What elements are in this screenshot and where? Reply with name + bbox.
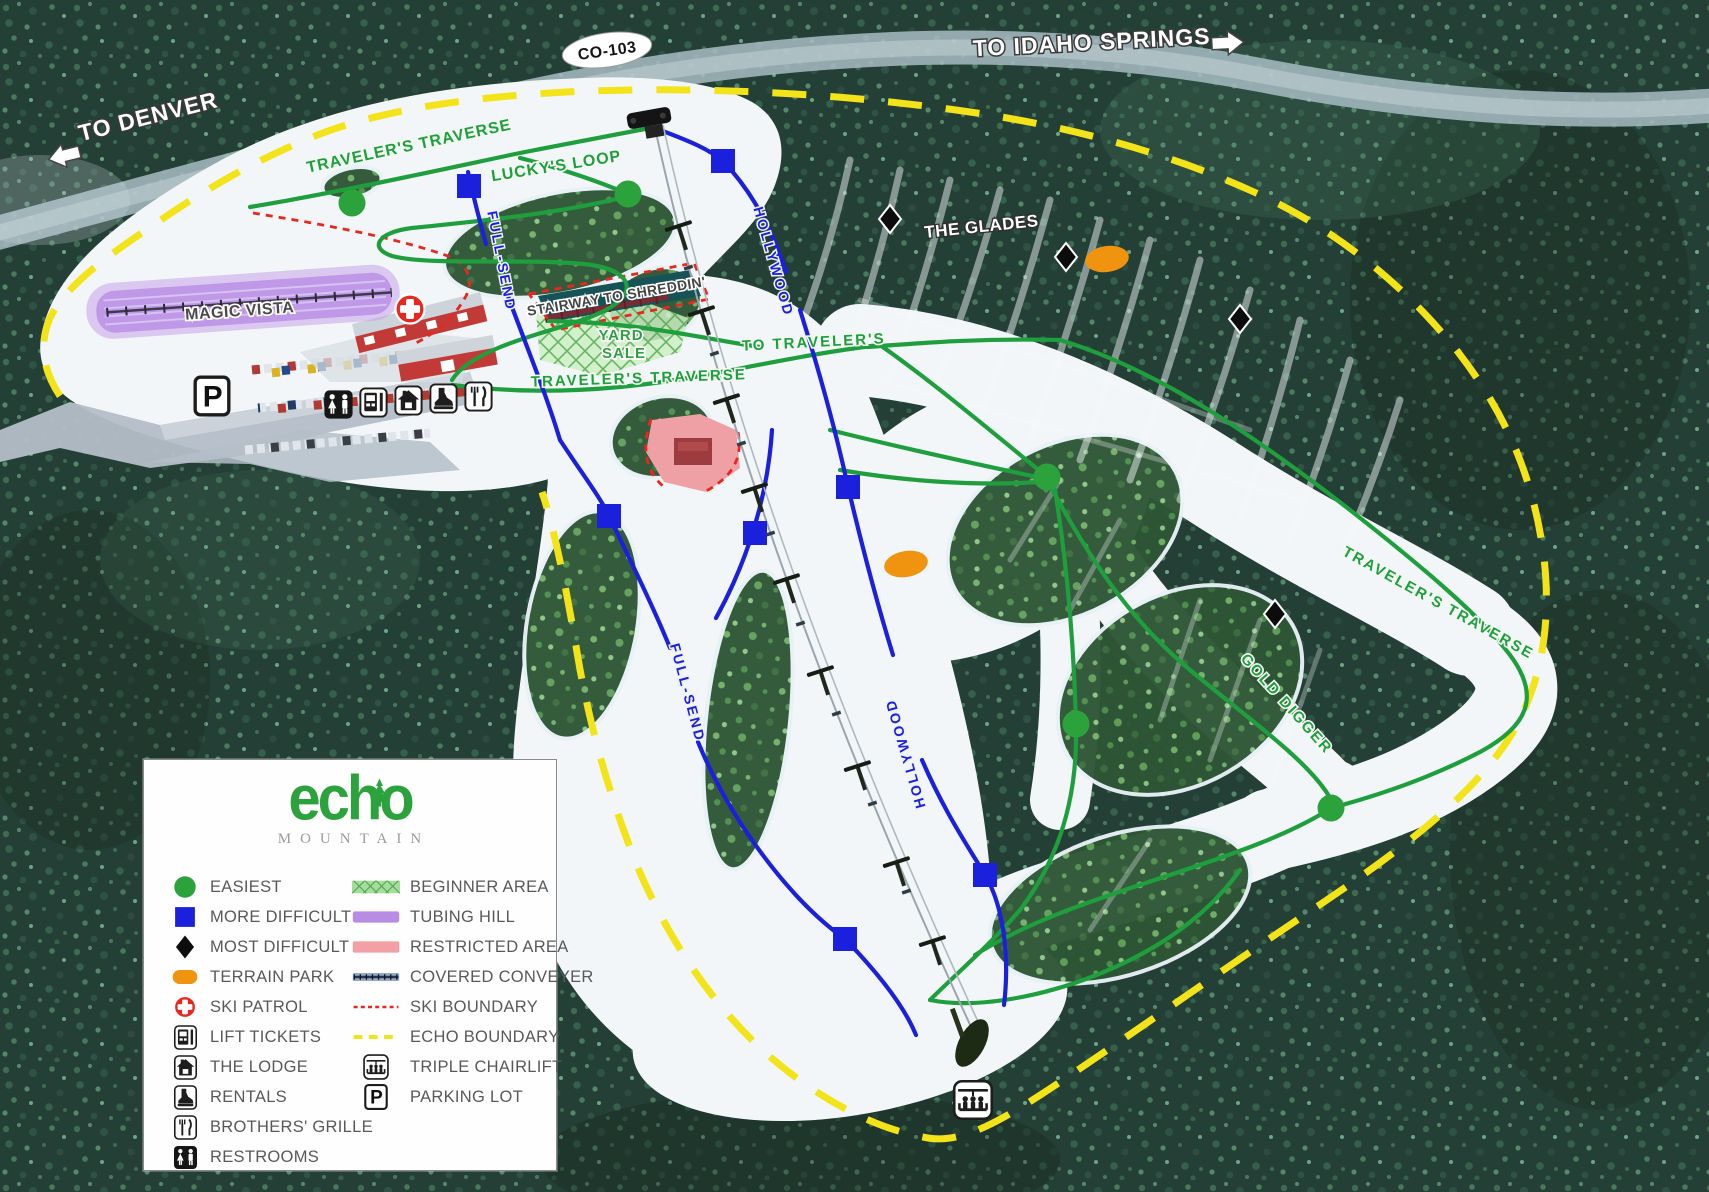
- restricted-area-swatch: [352, 940, 400, 954]
- triple-chairlift-icon: [362, 1053, 390, 1081]
- legend-label: LIFT TICKETS: [210, 1028, 321, 1047]
- rentals-icon: [430, 384, 456, 412]
- legend-item-parking-lot: PARKING LOT: [350, 1082, 555, 1112]
- legend-label: RESTRICTED AREA: [410, 938, 569, 957]
- logo-text: echo: [288, 763, 411, 833]
- lift-tickets-icon: [360, 388, 386, 416]
- pine-tree-icon: [370, 778, 389, 806]
- legend-item-the-lodge: THE LODGE: [168, 1052, 348, 1082]
- more-difficult-marker: [836, 475, 860, 499]
- legend-item-lift-tickets: LIFT TICKETS: [168, 1022, 348, 1052]
- legend-label: RESTROOMS: [210, 1148, 319, 1167]
- more-difficult-marker: [743, 521, 767, 545]
- lift-tickets-icon: [172, 1024, 199, 1051]
- legend-panel: echo MOUNTAIN EASIEST MORE DIFFICULT MOS…: [143, 759, 557, 1171]
- legend-label: TERRAIN PARK: [210, 968, 334, 987]
- legend-item-tubing-hill: TUBING HILL: [350, 902, 555, 932]
- echo-logo: echo MOUNTAIN: [144, 770, 556, 866]
- legend-item-brothers-grille: BROTHERS' GRILLE: [168, 1112, 348, 1142]
- ski-patrol-icon: [395, 294, 424, 323]
- label-sale: SALE: [602, 345, 646, 362]
- beginner-area-swatch: [352, 880, 400, 894]
- ski-boundary-dashes-icon: [352, 1000, 400, 1014]
- legend-label: MOST DIFFICULT: [210, 938, 349, 957]
- more-difficult-marker: [833, 927, 857, 951]
- legend-item-covered-conveyer: COVERED CONVEYER: [350, 962, 555, 992]
- the-lodge-icon: [395, 386, 421, 414]
- easiest-marker: [339, 190, 366, 217]
- covered-conveyer-swatch: [352, 970, 400, 984]
- legend-item-rentals: RENTALS: [168, 1082, 348, 1112]
- terrain-park-oval-icon: [170, 962, 200, 992]
- legend-item-more-difficult: MORE DIFFICULT: [168, 902, 348, 932]
- legend-item-beginner-area: BEGINNER AREA: [350, 872, 555, 902]
- legend-label: THE LODGE: [210, 1058, 308, 1077]
- legend-item-ski-boundary: SKI BOUNDARY: [350, 992, 555, 1022]
- restrooms-icon: [324, 390, 352, 418]
- legend-label: BEGINNER AREA: [410, 878, 549, 897]
- legend-item-restrooms: RESTROOMS: [168, 1142, 348, 1172]
- more-difficult-marker: [597, 504, 621, 528]
- more-difficult-square-icon: [171, 903, 199, 931]
- legend-item-easiest: EASIEST: [168, 872, 348, 902]
- ski-patrol-cross-icon: [171, 993, 199, 1021]
- legend-item-most-difficult: MOST DIFFICULT: [168, 932, 348, 962]
- brothers-grille-icon: [465, 382, 491, 410]
- easiest-circle-icon: [171, 873, 199, 901]
- legend-label: SKI BOUNDARY: [410, 998, 538, 1017]
- legend-label: COVERED CONVEYER: [410, 968, 594, 987]
- triple-chairlift-icon: [954, 1081, 992, 1119]
- legend-label: TRIPLE CHAIRLIFT: [410, 1058, 562, 1077]
- legend-item-ski-patrol: SKI PATROL: [168, 992, 348, 1022]
- parking-icon: [195, 377, 229, 415]
- easiest-marker: [615, 181, 642, 208]
- legend-label: RENTALS: [210, 1088, 287, 1107]
- easiest-marker: [1318, 795, 1345, 822]
- legend-label: BROTHERS' GRILLE: [210, 1118, 373, 1137]
- legend-item-restricted-area: RESTRICTED AREA: [350, 932, 555, 962]
- legend-item-triple-chairlift: TRIPLE CHAIRLIFT: [350, 1052, 555, 1082]
- easiest-marker: [1034, 464, 1061, 491]
- legend-item-echo-boundary: ECHO BOUNDARY: [350, 1022, 555, 1052]
- legend-item-terrain-park: TERRAIN PARK: [168, 962, 348, 992]
- legend-label: TUBING HILL: [410, 908, 515, 927]
- legend-label: ECHO BOUNDARY: [410, 1028, 559, 1047]
- brothers-grille-icon: [172, 1114, 199, 1141]
- the-lodge-icon: [172, 1054, 199, 1081]
- legend-label: MORE DIFFICULT: [210, 908, 351, 927]
- easiest-marker: [1063, 711, 1090, 738]
- rentals-icon: [172, 1084, 199, 1111]
- legend-column-right: BEGINNER AREA TUBING HILL RESTRICTED ARE…: [350, 872, 555, 1112]
- more-difficult-marker: [973, 863, 997, 887]
- more-difficult-marker: [457, 174, 481, 198]
- label-yard: YARD: [598, 327, 643, 344]
- parking-lot-icon: [362, 1083, 390, 1111]
- trail-map: P: [0, 0, 1709, 1192]
- legend-label: PARKING LOT: [410, 1088, 523, 1107]
- restrooms-icon: [172, 1144, 199, 1171]
- echo-boundary-dashes-icon: [352, 1030, 400, 1044]
- more-difficult-marker: [711, 149, 735, 173]
- legend-label: EASIEST: [210, 878, 282, 897]
- most-difficult-diamond-icon: [171, 933, 199, 961]
- legend-label: SKI PATROL: [210, 998, 308, 1017]
- legend-column-left: EASIEST MORE DIFFICULT MOST DIFFICULT TE…: [168, 872, 348, 1172]
- tubing-hill-swatch: [352, 910, 400, 924]
